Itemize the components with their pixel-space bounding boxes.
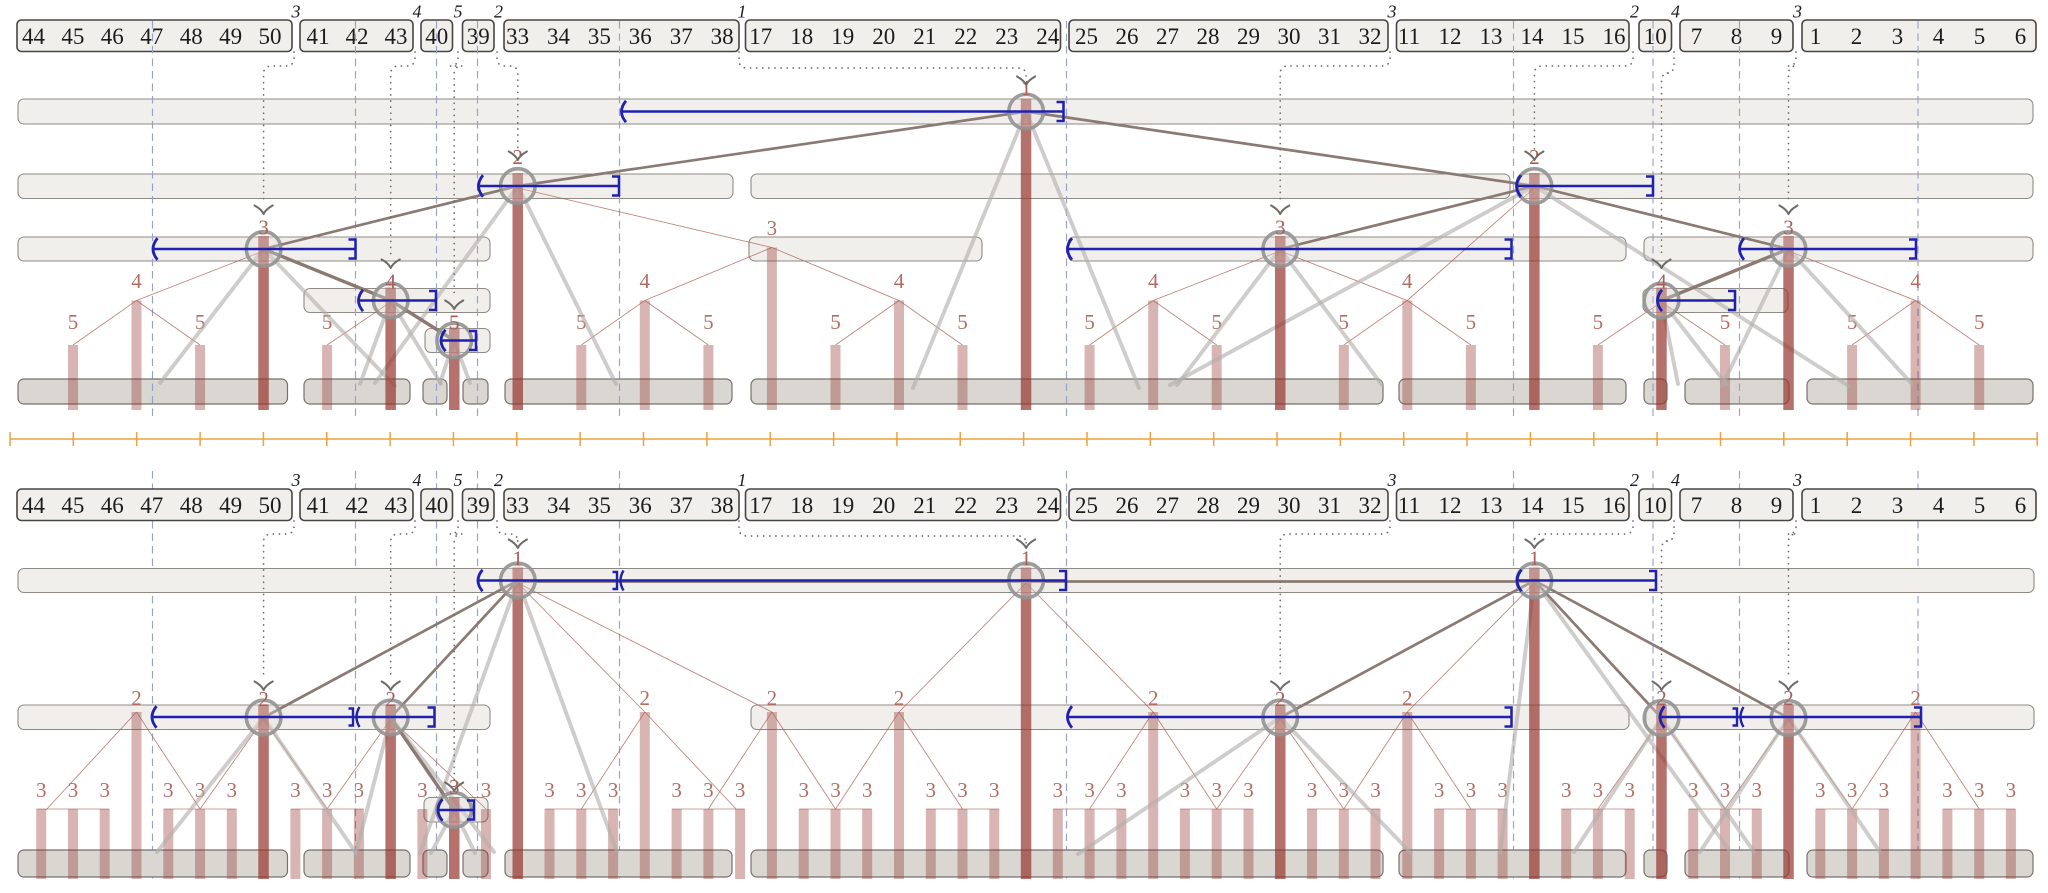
svg-text:3: 3 [1792,470,1802,490]
svg-text:6: 6 [2015,24,2027,49]
svg-text:14: 14 [1521,24,1545,49]
svg-text:9: 9 [1771,493,1783,518]
svg-text:5: 5 [1974,310,1985,334]
svg-text:3: 3 [957,778,968,802]
svg-text:3: 3 [68,778,79,802]
svg-text:18: 18 [790,493,813,518]
svg-text:17: 17 [749,24,772,49]
svg-text:2: 2 [1851,24,1863,49]
svg-text:38: 38 [711,493,734,518]
svg-text:5: 5 [68,310,79,334]
svg-text:25: 25 [1075,493,1098,518]
svg-text:3: 3 [1084,778,1095,802]
svg-text:2: 2 [894,686,905,710]
svg-text:48: 48 [180,24,203,49]
svg-text:3: 3 [1792,2,1802,22]
svg-text:3: 3 [1466,778,1477,802]
svg-text:35: 35 [588,24,611,49]
svg-text:12: 12 [1439,24,1462,49]
svg-text:3: 3 [1370,778,1381,802]
svg-text:6: 6 [2015,493,2027,518]
svg-text:3: 3 [1053,778,1064,802]
svg-text:2: 2 [767,686,778,710]
svg-text:43: 43 [385,493,408,518]
svg-text:4: 4 [1148,269,1159,293]
svg-text:44: 44 [22,493,46,518]
svg-text:34: 34 [547,24,571,49]
svg-text:3: 3 [1211,778,1222,802]
svg-text:5: 5 [454,2,463,22]
svg-text:2: 2 [1630,470,1639,490]
svg-text:14: 14 [1521,493,1545,518]
svg-text:29: 29 [1237,24,1260,49]
svg-text:35: 35 [588,493,611,518]
svg-text:4: 4 [1910,269,1921,293]
svg-text:5: 5 [957,310,968,334]
svg-text:3: 3 [290,778,301,802]
svg-text:3: 3 [544,778,555,802]
svg-text:26: 26 [1116,24,1139,49]
svg-text:5: 5 [1974,24,1986,49]
svg-text:3: 3 [322,778,333,802]
svg-text:20: 20 [872,24,895,49]
svg-text:38: 38 [711,24,734,49]
svg-text:12: 12 [1439,493,1462,518]
svg-text:3: 3 [291,2,301,22]
svg-text:3: 3 [1783,216,1794,240]
svg-text:4: 4 [1402,269,1413,293]
svg-text:47: 47 [140,493,163,518]
svg-text:45: 45 [61,493,84,518]
svg-text:25: 25 [1075,24,1098,49]
svg-text:28: 28 [1197,24,1220,49]
svg-text:3: 3 [1892,24,1904,49]
svg-text:3: 3 [1243,778,1254,802]
svg-text:3: 3 [291,470,301,490]
svg-text:5: 5 [703,310,714,334]
svg-text:1: 1 [1529,547,1540,571]
svg-text:3: 3 [99,778,110,802]
svg-text:3: 3 [1815,778,1826,802]
svg-text:46: 46 [101,493,124,518]
svg-text:24: 24 [1036,493,1060,518]
svg-text:13: 13 [1480,493,1503,518]
svg-text:4: 4 [131,269,142,293]
svg-text:8: 8 [1731,493,1743,518]
svg-text:3: 3 [2006,778,2017,802]
svg-text:3: 3 [1892,493,1904,518]
svg-text:4: 4 [894,269,905,293]
svg-text:2: 2 [494,470,503,490]
svg-text:1: 1 [1810,493,1822,518]
svg-text:30: 30 [1278,24,1301,49]
svg-text:3: 3 [1879,778,1890,802]
svg-text:4: 4 [1671,2,1680,22]
svg-text:2: 2 [640,686,651,710]
svg-text:1: 1 [738,470,747,490]
svg-text:31: 31 [1318,493,1341,518]
svg-text:49: 49 [219,493,242,518]
svg-text:2: 2 [1851,493,1863,518]
svg-text:3: 3 [163,778,174,802]
svg-text:37: 37 [670,24,693,49]
svg-text:1: 1 [1021,547,1032,571]
svg-text:20: 20 [872,493,895,518]
svg-text:5: 5 [449,311,460,335]
svg-text:22: 22 [954,493,977,518]
svg-text:28: 28 [1197,493,1220,518]
svg-text:50: 50 [259,493,282,518]
svg-text:32: 32 [1359,493,1382,518]
svg-text:27: 27 [1156,493,1179,518]
svg-text:49: 49 [219,24,242,49]
svg-text:43: 43 [385,24,408,49]
svg-text:3: 3 [576,778,587,802]
svg-text:4: 4 [1671,470,1680,490]
svg-text:2: 2 [1529,145,1540,169]
svg-text:4: 4 [1933,24,1945,49]
svg-text:42: 42 [346,24,369,49]
svg-text:16: 16 [1603,24,1626,49]
svg-text:32: 32 [1359,24,1382,49]
svg-text:15: 15 [1562,493,1585,518]
svg-text:2: 2 [1630,2,1639,22]
svg-text:4: 4 [385,270,396,294]
svg-text:30: 30 [1278,493,1301,518]
svg-text:3: 3 [258,216,269,240]
svg-text:3: 3 [36,778,47,802]
svg-text:36: 36 [629,24,652,49]
svg-text:40: 40 [425,493,448,518]
svg-text:10: 10 [1644,493,1667,518]
svg-text:3: 3 [671,778,682,802]
svg-text:33: 33 [506,493,529,518]
svg-text:3: 3 [735,778,746,802]
svg-text:3: 3 [1387,470,1397,490]
svg-text:33: 33 [506,24,529,49]
svg-text:3: 3 [1434,778,1445,802]
svg-text:8: 8 [1731,24,1743,49]
svg-text:5: 5 [1720,310,1731,334]
svg-text:3: 3 [767,216,778,240]
svg-text:3: 3 [1307,778,1318,802]
svg-text:3: 3 [417,778,428,802]
svg-text:3: 3 [703,778,714,802]
svg-text:50: 50 [259,24,282,49]
svg-text:3: 3 [1847,778,1858,802]
svg-text:3: 3 [1624,778,1635,802]
svg-text:9: 9 [1771,24,1783,49]
svg-text:3: 3 [1974,778,1985,802]
svg-text:23: 23 [995,493,1018,518]
svg-text:36: 36 [629,493,652,518]
svg-text:3: 3 [989,778,1000,802]
svg-text:37: 37 [670,493,693,518]
svg-text:3: 3 [354,778,365,802]
svg-text:19: 19 [831,24,854,49]
svg-text:44: 44 [22,24,46,49]
svg-text:27: 27 [1156,24,1179,49]
svg-text:3: 3 [1387,2,1397,22]
svg-text:41: 41 [307,24,330,49]
svg-text:39: 39 [467,24,490,49]
svg-text:3: 3 [1942,778,1953,802]
svg-text:4: 4 [640,269,651,293]
svg-text:1: 1 [1810,24,1822,49]
svg-text:41: 41 [307,493,330,518]
svg-text:3: 3 [1720,778,1731,802]
svg-text:2: 2 [494,2,503,22]
svg-text:42: 42 [346,493,369,518]
svg-text:19: 19 [831,493,854,518]
svg-text:3: 3 [1561,778,1572,802]
svg-text:3: 3 [608,778,619,802]
svg-text:3: 3 [1593,778,1604,802]
svg-text:3: 3 [830,778,841,802]
svg-text:31: 31 [1318,24,1341,49]
svg-text:11: 11 [1398,24,1420,49]
svg-text:3: 3 [1116,778,1127,802]
svg-text:10: 10 [1644,24,1667,49]
svg-text:4: 4 [413,470,422,490]
svg-text:7: 7 [1691,493,1703,518]
svg-text:29: 29 [1237,493,1260,518]
svg-text:4: 4 [413,2,422,22]
svg-text:5: 5 [1084,310,1095,334]
svg-text:3: 3 [227,778,238,802]
svg-text:45: 45 [61,24,84,49]
svg-text:5: 5 [1974,493,1986,518]
svg-text:5: 5 [1466,310,1477,334]
svg-text:4: 4 [1656,270,1667,294]
svg-text:2: 2 [1402,686,1413,710]
svg-text:1: 1 [513,547,524,571]
svg-text:11: 11 [1398,493,1420,518]
svg-text:5: 5 [830,310,841,334]
svg-text:26: 26 [1116,493,1139,518]
svg-text:1: 1 [738,2,747,22]
svg-text:39: 39 [467,493,490,518]
svg-text:18: 18 [790,24,813,49]
svg-text:48: 48 [180,493,203,518]
svg-text:2: 2 [131,686,142,710]
svg-text:3: 3 [862,778,873,802]
svg-text:13: 13 [1480,24,1503,49]
svg-text:3: 3 [1275,216,1286,240]
svg-text:17: 17 [749,493,772,518]
svg-text:21: 21 [913,493,936,518]
svg-text:3: 3 [1752,778,1763,802]
svg-text:22: 22 [954,24,977,49]
svg-text:46: 46 [101,24,124,49]
svg-text:2: 2 [1148,686,1159,710]
svg-text:47: 47 [140,24,163,49]
svg-text:16: 16 [1603,493,1626,518]
svg-text:15: 15 [1562,24,1585,49]
svg-text:3: 3 [926,778,937,802]
svg-text:21: 21 [913,24,936,49]
svg-text:5: 5 [1593,310,1604,334]
svg-text:3: 3 [798,778,809,802]
svg-text:3: 3 [481,778,492,802]
svg-text:34: 34 [547,493,571,518]
svg-text:23: 23 [995,24,1018,49]
svg-text:24: 24 [1036,24,1060,49]
svg-text:7: 7 [1691,24,1703,49]
svg-text:4: 4 [1933,493,1945,518]
svg-text:5: 5 [454,470,463,490]
